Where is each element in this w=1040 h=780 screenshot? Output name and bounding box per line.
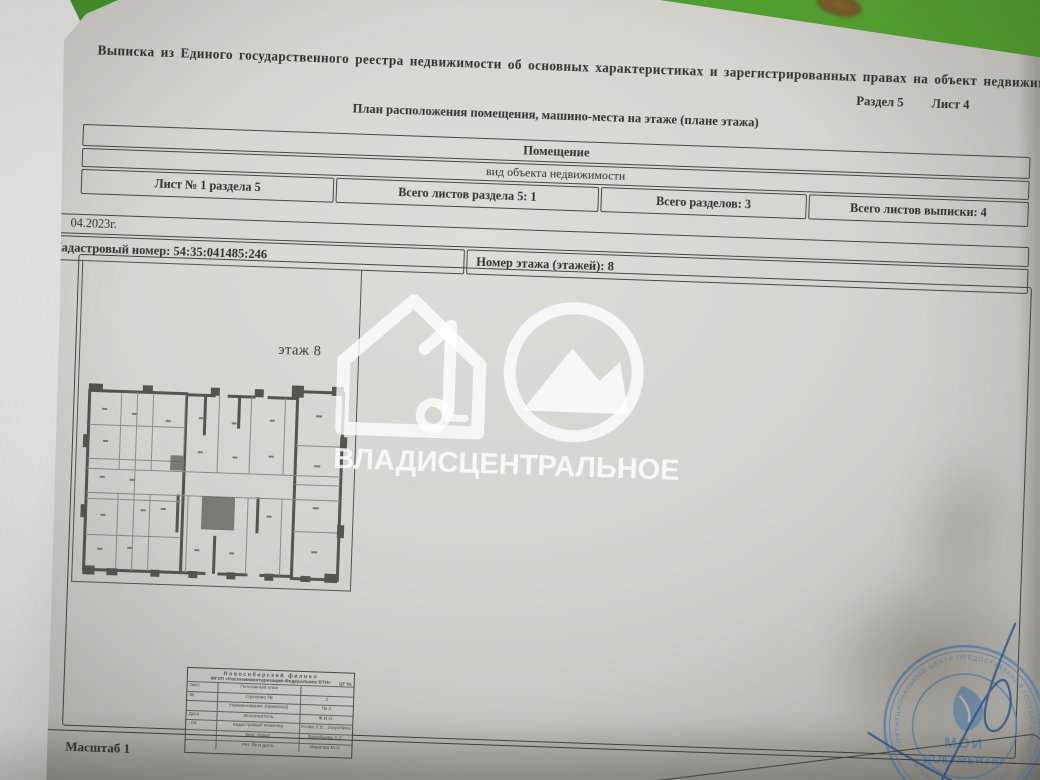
sections-total-cell: Всего разделов: 3 bbox=[600, 187, 807, 219]
section-label: Раздел 5 bbox=[856, 94, 904, 111]
section-sheet-labels: Раздел 5 Лист 4 bbox=[856, 94, 970, 113]
date-fragment: 04.2023г. bbox=[70, 216, 117, 233]
object-info-table: Помещение вид объекта недвижимости Лист … bbox=[81, 124, 1031, 227]
floor-caption: этаж 8 bbox=[278, 342, 322, 360]
floor-plan-drawing bbox=[78, 377, 349, 584]
extract-sheets-cell: Всего листов выписки: 4 bbox=[808, 194, 1029, 227]
photo-scene: Выписка из Единого государственного реес… bbox=[0, 0, 1040, 780]
scale-caption: Масштаб 1 bbox=[65, 739, 130, 756]
document-title: Выписка из Единого государственного реес… bbox=[97, 42, 1013, 90]
brand-watermark: ВЛАДИСЦЕНТРАЛЬНОЕ bbox=[330, 288, 688, 488]
sheet-label: Лист 4 bbox=[931, 97, 969, 113]
floor-plan-frame: этаж 8 bbox=[71, 260, 362, 592]
house-key-logo-icon bbox=[331, 288, 688, 448]
org2-right: ЦТ № bbox=[339, 681, 352, 686]
document-page: Выписка из Единого государственного реес… bbox=[0, 0, 1040, 780]
watermark-brand-text: ВЛАДИСЦЕНТРАЛЬНОЕ bbox=[330, 443, 683, 488]
